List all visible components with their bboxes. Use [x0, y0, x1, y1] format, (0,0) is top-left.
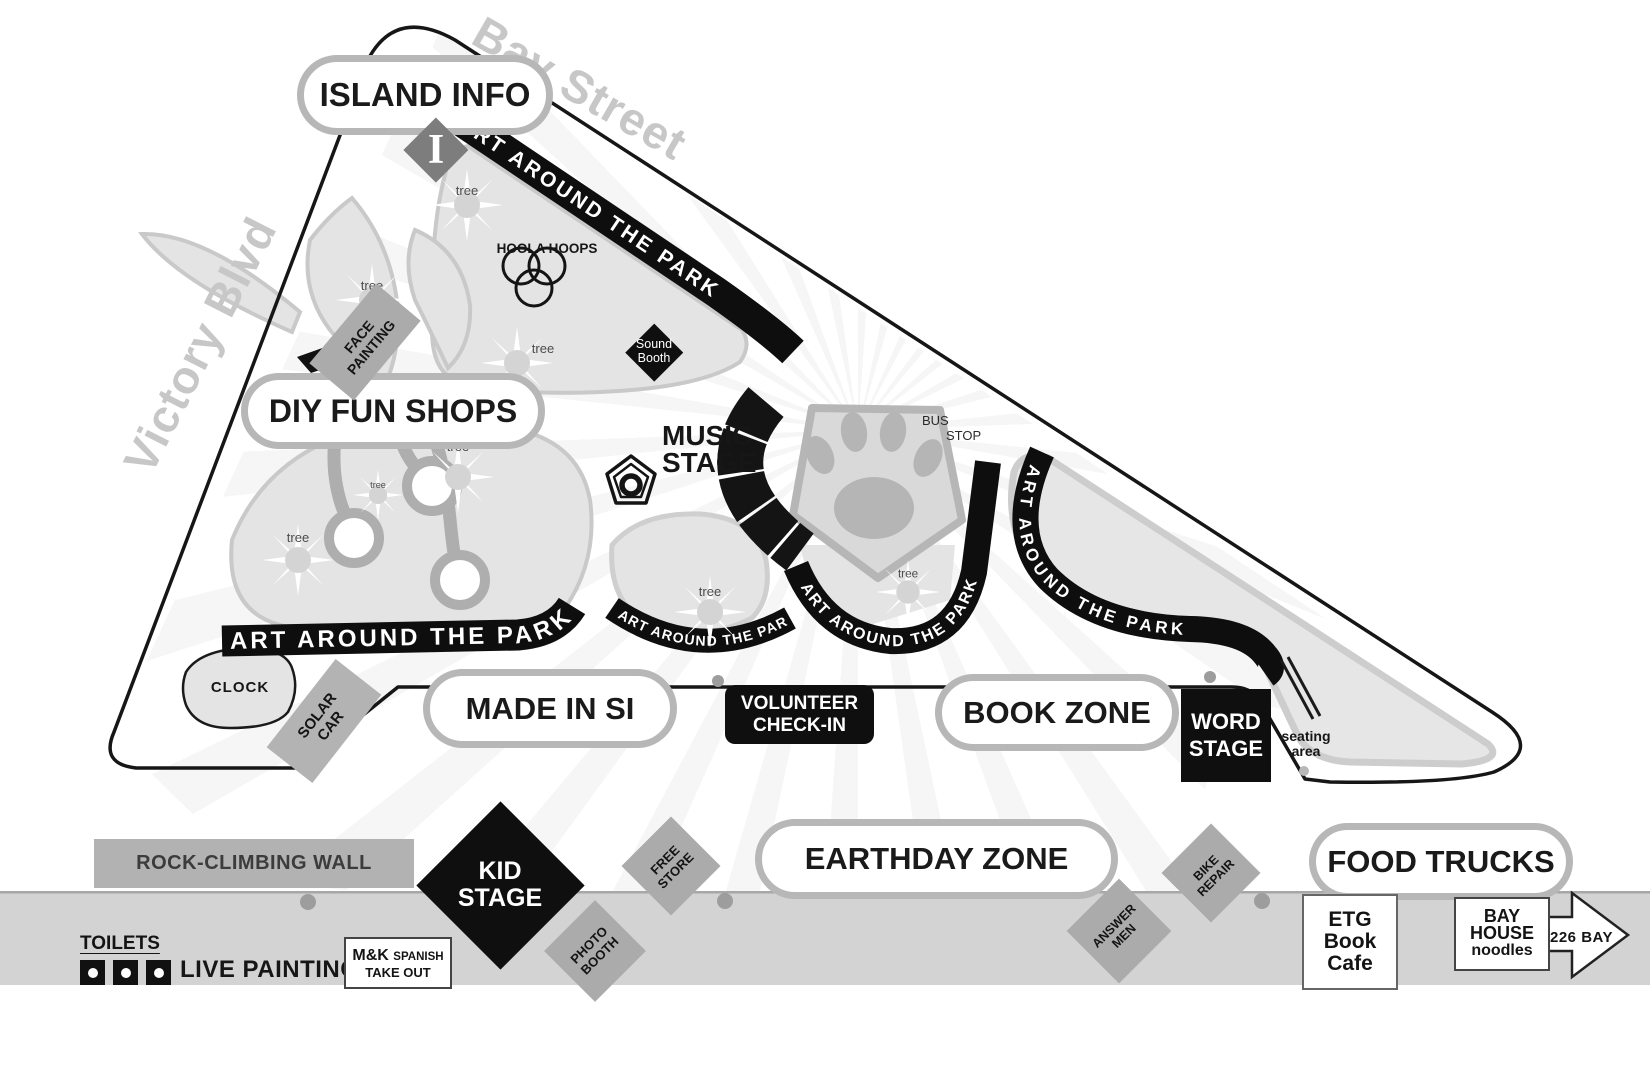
toilets-label: TOILETS [80, 933, 171, 955]
bay-house-sub: noodles [1471, 942, 1532, 960]
clock-label: CLOCK [198, 679, 282, 696]
zone-book-zone: BOOK ZONE [935, 674, 1179, 751]
svg-text:tree: tree [699, 584, 721, 599]
toilet-icon [80, 960, 105, 985]
mk-line2: TAKE OUT [365, 965, 430, 980]
hoola-hoops-label: HOOLA HOOPS [487, 241, 607, 256]
mk-spanish-takeout: M&K SPANISH TAKE OUT [344, 937, 452, 989]
diy-circle-1 [329, 513, 379, 563]
park-festival-map: ART AROUND THE PARK ART AROUND THE PARK … [0, 0, 1650, 1083]
rock-climbing-wall: ROCK-CLIMBING WALL [94, 839, 414, 888]
zone-made-in-si: MADE IN SI [423, 669, 677, 748]
park-map-canvas: ART AROUND THE PARK ART AROUND THE PARK … [0, 0, 1650, 1083]
bay-house-noodles: BAY HOUSE noodles [1454, 897, 1550, 971]
seating-area-label: seating area [1266, 729, 1346, 758]
tree-icon: tree [353, 470, 403, 520]
svg-text:tree: tree [532, 341, 554, 356]
etg-book-cafe: ETG Book Cafe [1302, 894, 1398, 990]
bus-stop-label-stop: STOP [946, 428, 981, 443]
sound-booth: Sound Booth [610, 308, 698, 396]
live-painting-label: LIVE PAINTING [180, 956, 359, 984]
toilet-stall-icons [80, 960, 171, 985]
zone-earthday-zone: EARTHDAY ZONE [755, 819, 1118, 899]
svg-text:tree: tree [287, 530, 309, 545]
tree-icon: tree [674, 576, 746, 648]
music-stage-label: MUSIC STAGE [662, 423, 756, 476]
word-stage: WORD STAGE [1181, 689, 1271, 782]
zone-diy-fun-shops: DIY FUN SHOPS [241, 373, 545, 449]
diy-circle-3 [435, 555, 485, 605]
island-info-marker: I [392, 106, 480, 194]
zone-food-trucks: FOOD TRUCKS [1309, 823, 1573, 900]
tree-icon: tree [876, 560, 941, 625]
bus-stop-label-bus: BUS [922, 413, 949, 428]
svg-text:tree: tree [370, 480, 386, 490]
bay-house-name: BAY HOUSE [1470, 908, 1534, 942]
mk-line1: M&K SPANISH [352, 947, 443, 965]
svg-text:tree: tree [898, 568, 918, 581]
toilet-icon [113, 960, 138, 985]
gazebo-icon [607, 456, 655, 503]
toilet-icon [146, 960, 171, 985]
arrow-address-label: 226 BAY [1550, 929, 1613, 946]
toilets-block: TOILETS [80, 933, 171, 985]
volunteer-check-in: VOLUNTEER CHECK-IN [725, 685, 874, 744]
tree-icon: tree [262, 524, 334, 596]
